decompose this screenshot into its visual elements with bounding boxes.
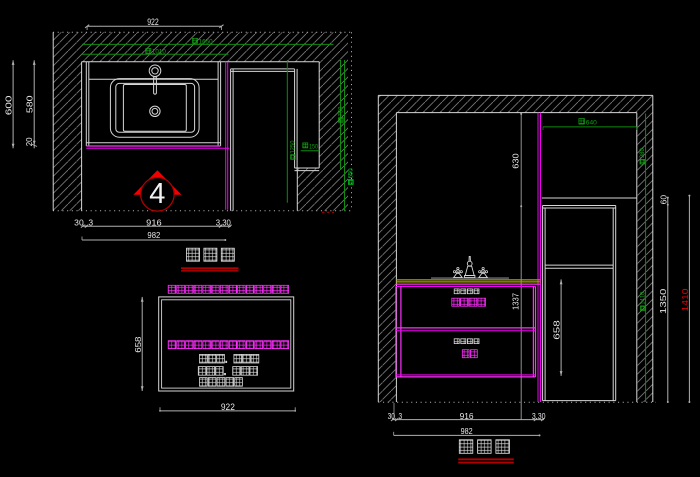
- svg-text:3.30: 3.30: [532, 411, 546, 421]
- svg-text:1650: 1650: [199, 38, 213, 45]
- svg-text:1350: 1350: [659, 288, 668, 314]
- svg-text:922: 922: [221, 402, 235, 412]
- svg-text:916: 916: [460, 411, 474, 421]
- svg-text:1410: 1410: [681, 288, 690, 312]
- svg-text:30. 3: 30. 3: [74, 217, 93, 227]
- svg-text:630: 630: [511, 153, 520, 169]
- svg-text:650: 650: [347, 168, 354, 178]
- svg-text:1337: 1337: [511, 292, 520, 310]
- svg-text:30. 3: 30. 3: [388, 411, 403, 421]
- svg-text:658: 658: [551, 320, 561, 340]
- svg-text:750: 750: [337, 106, 344, 116]
- svg-text:1410: 1410: [639, 291, 646, 304]
- svg-text:658: 658: [133, 336, 143, 353]
- svg-text:982: 982: [147, 230, 160, 240]
- svg-text:640: 640: [586, 119, 597, 126]
- svg-text:1250: 1250: [289, 140, 296, 153]
- svg-text:20: 20: [25, 137, 34, 146]
- svg-text:150: 150: [309, 143, 318, 150]
- svg-text:982: 982: [461, 426, 473, 436]
- svg-text:922: 922: [147, 17, 159, 27]
- svg-text:60: 60: [659, 194, 668, 204]
- svg-text:980: 980: [639, 148, 646, 158]
- svg-text:580: 580: [26, 95, 35, 113]
- svg-text:4: 4: [149, 178, 165, 210]
- svg-text:916: 916: [146, 217, 162, 227]
- svg-text:3.30: 3.30: [216, 217, 231, 227]
- svg-text:600: 600: [4, 95, 13, 116]
- svg-text:1010: 1010: [152, 49, 166, 56]
